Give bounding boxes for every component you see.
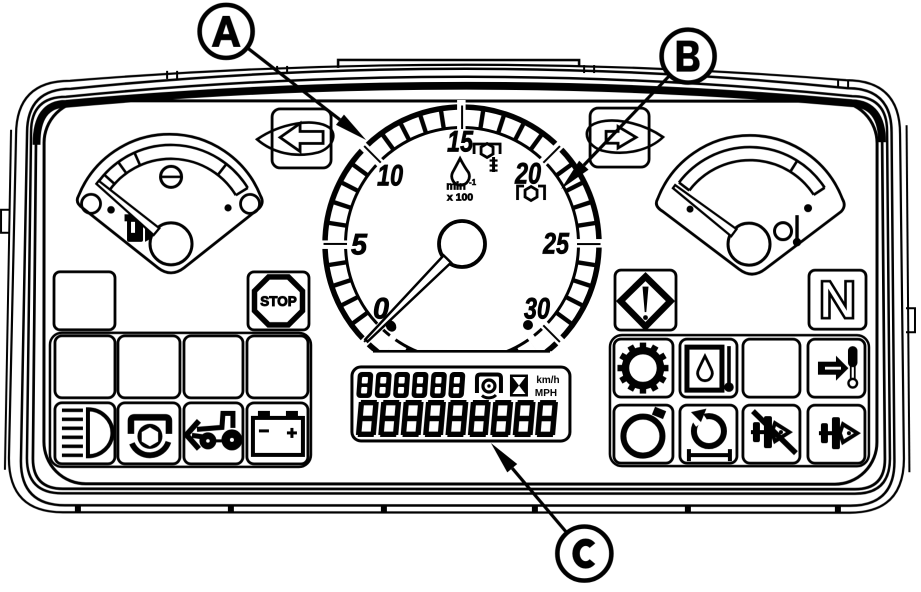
svg-text:5: 5 (351, 228, 368, 261)
svg-text:STOP: STOP (260, 294, 297, 309)
svg-text:10: 10 (377, 159, 403, 192)
svg-text:-1: -1 (469, 178, 477, 187)
svg-text:25: 25 (542, 228, 570, 261)
svg-text:x 100: x 100 (447, 191, 473, 203)
svg-text:MPH: MPH (535, 388, 557, 399)
svg-text:15: 15 (447, 125, 474, 158)
svg-text:km/h: km/h (536, 375, 559, 386)
